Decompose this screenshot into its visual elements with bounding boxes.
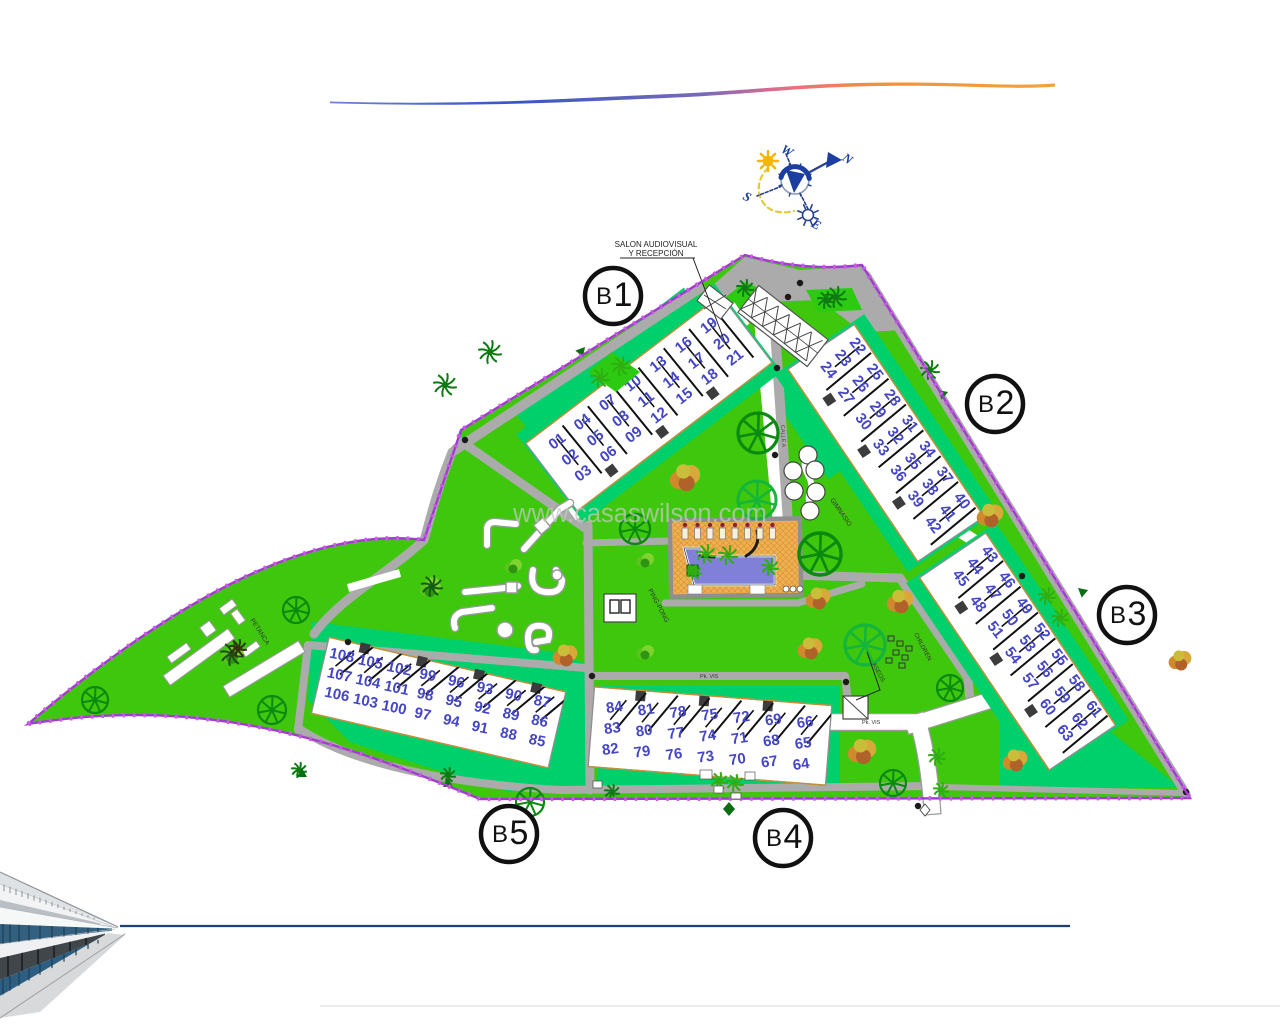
- svg-text:CALLE A: CALLE A: [779, 425, 786, 448]
- svg-text:3: 3: [1128, 595, 1147, 633]
- svg-text:Pk. VIS: Pk. VIS: [862, 720, 881, 726]
- svg-text:78: 78: [669, 703, 688, 722]
- svg-text:74: 74: [698, 726, 718, 745]
- svg-text:85: 85: [527, 731, 547, 751]
- svg-text:Y RECEPCIÓN: Y RECEPCIÓN: [629, 249, 684, 258]
- svg-text:83: 83: [603, 719, 622, 738]
- svg-text:B: B: [766, 825, 782, 852]
- svg-text:69: 69: [764, 710, 783, 729]
- svg-text:67: 67: [760, 752, 779, 771]
- svg-text:1: 1: [614, 276, 633, 314]
- svg-text:97: 97: [413, 704, 433, 724]
- svg-text:64: 64: [792, 755, 812, 774]
- svg-text:93: 93: [475, 679, 495, 699]
- svg-text:95: 95: [444, 691, 464, 711]
- svg-text:B: B: [492, 821, 508, 848]
- svg-text:75: 75: [700, 705, 719, 724]
- svg-text:66: 66: [796, 713, 815, 732]
- svg-text:68: 68: [762, 731, 781, 750]
- svg-text:98: 98: [415, 685, 435, 705]
- svg-text:86: 86: [530, 711, 550, 731]
- svg-text:73: 73: [696, 747, 715, 766]
- svg-text:2: 2: [996, 384, 1015, 422]
- svg-text:65: 65: [794, 734, 813, 753]
- svg-text:72: 72: [732, 708, 751, 727]
- svg-text:90: 90: [504, 685, 524, 705]
- svg-text:81: 81: [637, 700, 656, 719]
- svg-text:4: 4: [784, 818, 803, 856]
- svg-text:82: 82: [601, 740, 620, 759]
- svg-text:87: 87: [532, 692, 552, 712]
- svg-text:SALON AUDIOVISUAL: SALON AUDIOVISUAL: [615, 240, 698, 249]
- svg-text:84: 84: [605, 698, 625, 717]
- svg-text:B: B: [1110, 602, 1126, 629]
- svg-text:79: 79: [633, 742, 652, 761]
- svg-text:89: 89: [501, 705, 521, 725]
- svg-text:92: 92: [473, 698, 493, 718]
- svg-text:88: 88: [499, 724, 519, 744]
- svg-text:70: 70: [728, 750, 747, 769]
- svg-text:77: 77: [667, 724, 686, 743]
- svg-text:www.casaswilson.com: www.casaswilson.com: [512, 500, 767, 528]
- svg-text:Pk. VIS: Pk. VIS: [700, 674, 719, 680]
- svg-text:76: 76: [665, 745, 684, 764]
- svg-text:71: 71: [730, 729, 749, 748]
- svg-text:96: 96: [446, 672, 466, 692]
- svg-text:B: B: [596, 283, 612, 310]
- svg-text:5: 5: [510, 814, 529, 852]
- svg-text:80: 80: [635, 721, 654, 740]
- svg-text:91: 91: [470, 718, 490, 738]
- svg-text:99: 99: [418, 665, 438, 685]
- svg-text:B: B: [978, 391, 994, 418]
